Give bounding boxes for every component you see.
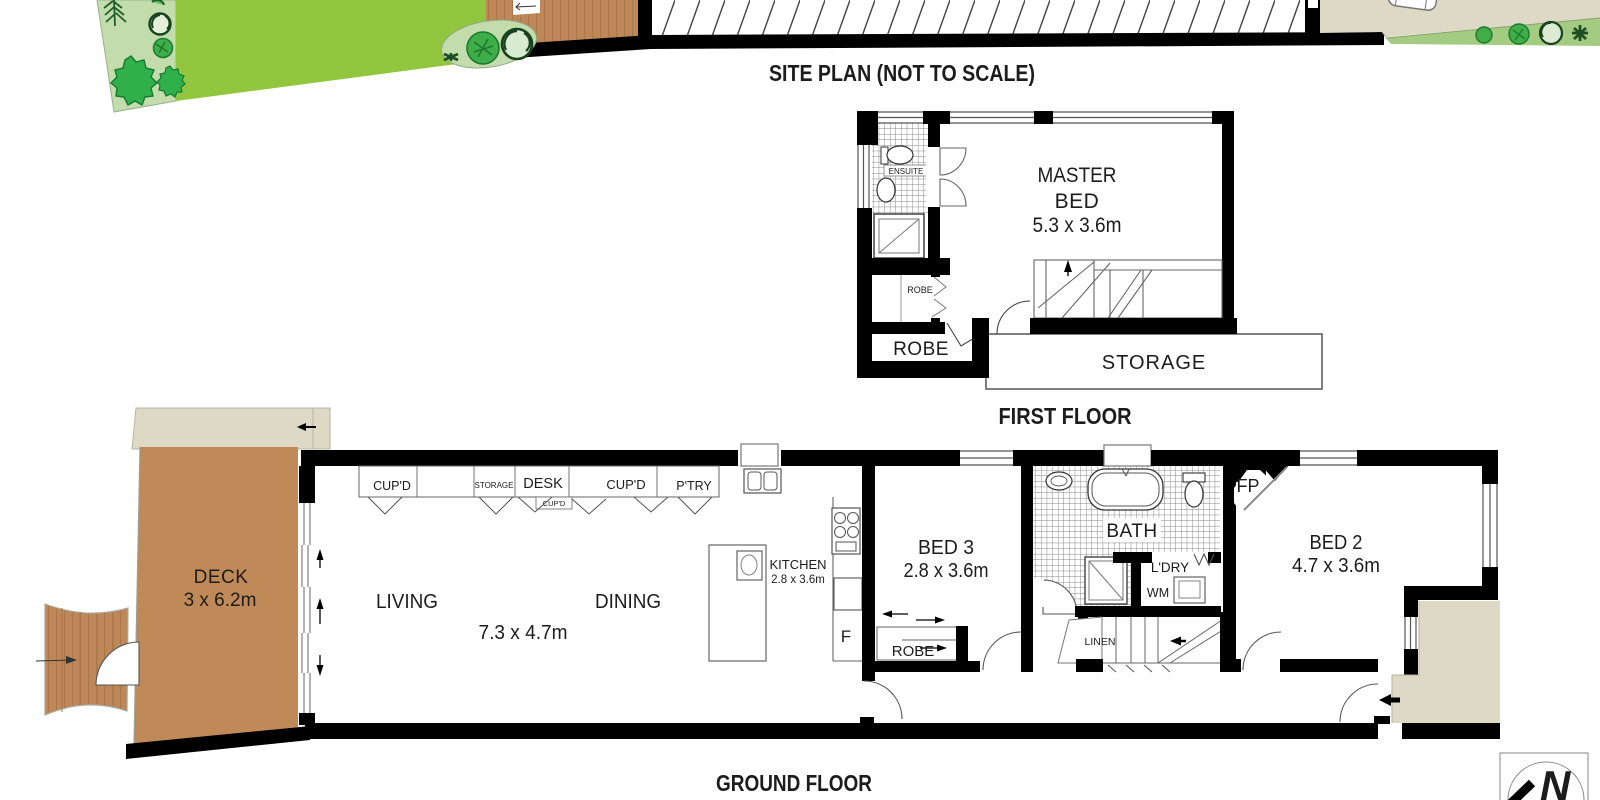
svg-text:STORAGE: STORAGE [1102,352,1206,374]
svg-text:BED 2: BED 2 [1310,532,1363,554]
svg-text:P'TRY: P'TRY [676,479,712,493]
svg-text:BED: BED [1055,190,1100,213]
svg-text:N: N [1540,762,1572,800]
svg-text:ROBE: ROBE [893,339,949,360]
svg-text:4.7 x 3.6m: 4.7 x 3.6m [1292,555,1380,577]
svg-text:2.8 x 3.6m: 2.8 x 3.6m [771,574,825,586]
svg-text:BED 3: BED 3 [918,537,974,559]
svg-text:LINEN: LINEN [1085,636,1116,648]
svg-text:ENSUITE: ENSUITE [889,167,924,176]
svg-text:2.8 x 3.6m: 2.8 x 3.6m [904,560,989,582]
svg-text:DINING: DINING [595,591,661,613]
svg-text:7.3 x 4.7m: 7.3 x 4.7m [479,622,568,644]
svg-text:FIRST FLOOR: FIRST FLOOR [999,403,1132,429]
svg-text:DECK: DECK [194,567,249,588]
svg-text:5.3 x 3.6m: 5.3 x 3.6m [1033,214,1122,237]
svg-text:MASTER: MASTER [1038,164,1117,187]
svg-text:CUP'D: CUP'D [543,499,566,508]
svg-text:ROBE: ROBE [892,643,935,660]
svg-text:ROBE: ROBE [907,285,933,295]
svg-text:SITE PLAN (NOT TO SCALE): SITE PLAN (NOT TO SCALE) [769,60,1035,86]
svg-text:WM: WM [1147,586,1169,600]
svg-text:CUP'D: CUP'D [606,477,645,492]
svg-text:STORAGE: STORAGE [475,481,514,490]
svg-text:CUP'D: CUP'D [373,479,411,493]
svg-text:BATH: BATH [1106,521,1157,542]
svg-text:3 x 6.2m: 3 x 6.2m [184,590,257,611]
svg-text:KITCHEN: KITCHEN [769,557,826,572]
svg-text:GROUND FLOOR: GROUND FLOOR [716,770,872,796]
svg-text:FP: FP [1236,476,1259,496]
svg-text:LIVING: LIVING [376,591,438,613]
svg-text:F: F [841,627,851,646]
svg-text:L'DRY: L'DRY [1151,560,1189,575]
svg-text:DESK: DESK [523,476,563,492]
